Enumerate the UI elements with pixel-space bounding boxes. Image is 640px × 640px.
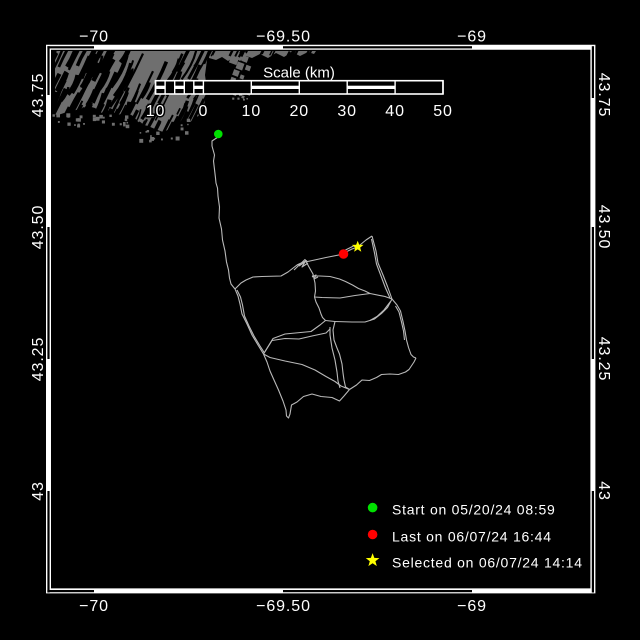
svg-text:−69.50: −69.50	[256, 29, 311, 46]
svg-text:43: 43	[595, 481, 612, 501]
svg-text:Last on 06/07/24 16:44: Last on 06/07/24 16:44	[392, 529, 552, 545]
svg-text:10: 10	[146, 103, 166, 120]
svg-text:50: 50	[433, 103, 453, 120]
svg-text:−69: −69	[457, 29, 487, 46]
svg-text:30: 30	[337, 103, 357, 120]
svg-text:−70: −70	[79, 598, 109, 615]
svg-text:40: 40	[385, 103, 405, 120]
svg-text:−70: −70	[79, 29, 109, 46]
svg-text:20: 20	[289, 103, 309, 120]
svg-text:−69: −69	[457, 598, 487, 615]
svg-text:43.50: 43.50	[595, 205, 612, 250]
svg-text:43.75: 43.75	[595, 73, 612, 118]
svg-text:43: 43	[30, 481, 47, 501]
svg-text:−69.50: −69.50	[256, 598, 311, 615]
svg-text:43.50: 43.50	[30, 205, 47, 250]
svg-text:43.25: 43.25	[595, 337, 612, 382]
svg-text:43.25: 43.25	[30, 337, 47, 382]
svg-text:0: 0	[199, 103, 209, 120]
svg-text:Scale (km): Scale (km)	[263, 65, 335, 82]
svg-text:Start on 05/20/24 08:59: Start on 05/20/24 08:59	[392, 502, 556, 518]
svg-text:43.75: 43.75	[30, 73, 47, 118]
svg-text:Selected on 06/07/24 14:14: Selected on 06/07/24 14:14	[392, 555, 583, 571]
svg-text:10: 10	[242, 103, 262, 120]
